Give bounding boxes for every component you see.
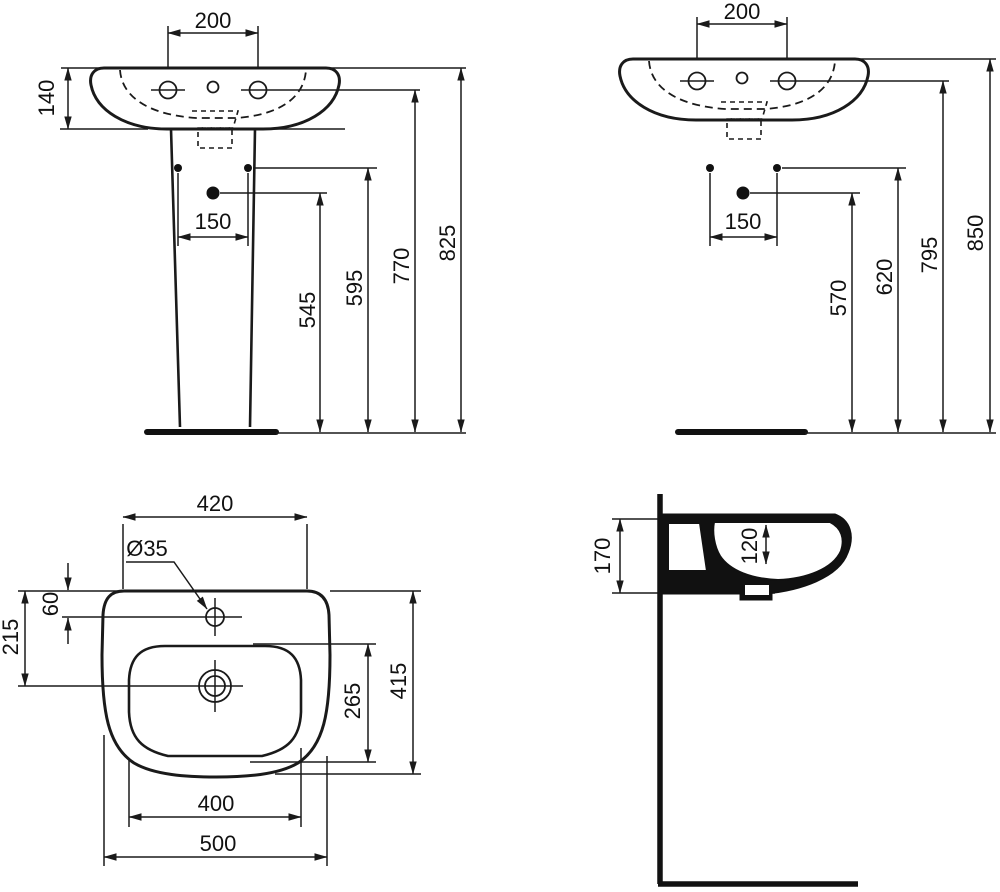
- dim-label-rim-height: 825: [435, 225, 460, 262]
- plan-view: 420 Ø35 60 215 265 415 400 500: [0, 491, 421, 866]
- dim-label-drain-height: 545: [295, 292, 320, 329]
- fixing-hole-right: [773, 164, 781, 172]
- washbasin-dimension-drawing: 200 140 150 545 595 770 825 200 150 570 …: [0, 0, 1000, 892]
- basin-outline: [102, 591, 330, 777]
- side-section-view: 170 120: [590, 494, 858, 884]
- dim-label-fixing-spacing: 150: [725, 209, 762, 234]
- dim-label-fixing-height: 620: [872, 259, 897, 296]
- dim-label-tap-offset: 60: [38, 592, 63, 616]
- dim-label-tap-hole-diameter: Ø35: [126, 536, 168, 561]
- bracket-section: [668, 523, 707, 571]
- dim-label-drain-height: 570: [826, 280, 851, 317]
- pedestal-outline: [171, 129, 255, 427]
- dim-label-drain-offset: 215: [0, 619, 23, 656]
- dim-label-tap-spacing: 200: [195, 8, 232, 33]
- dim-label-fixing-spacing: 150: [195, 209, 232, 234]
- front-pedestal-view: 200 140 150 545 595 770 825: [34, 8, 466, 433]
- dim-label-bowl-inner-depth: 120: [737, 528, 762, 565]
- technical-drawing-page: 200 140 150 545 595 770 825 200 150 570 …: [0, 0, 1000, 892]
- dim-label-rim-height: 850: [963, 215, 988, 252]
- dim-label-basin-height: 170: [590, 538, 615, 575]
- front-wall-hung-view: 200 150 570 620 795 850: [620, 0, 996, 433]
- dim-label-overall-depth: 415: [386, 663, 411, 700]
- fixing-hole-left: [706, 164, 714, 172]
- dim-label-fixing-height: 595: [342, 270, 367, 307]
- dim-label-tap-height: 770: [389, 248, 414, 285]
- fixing-hole-right: [244, 164, 252, 172]
- dim-label-tap-height: 795: [917, 237, 942, 274]
- drain-outlet-dot: [737, 187, 750, 200]
- fixing-hole-left: [174, 164, 182, 172]
- dim-label-rear-width: 420: [197, 491, 234, 516]
- dim-label-bowl-depth: 265: [340, 683, 365, 720]
- drain-outlet-dot: [207, 187, 220, 200]
- dim-label-tap-spacing: 200: [724, 0, 761, 24]
- dim-label-bowl-width: 400: [198, 791, 235, 816]
- dim-label-basin-apron-height: 140: [34, 80, 59, 117]
- drain-notch: [744, 584, 770, 596]
- dim-label-overall-width: 500: [200, 831, 237, 856]
